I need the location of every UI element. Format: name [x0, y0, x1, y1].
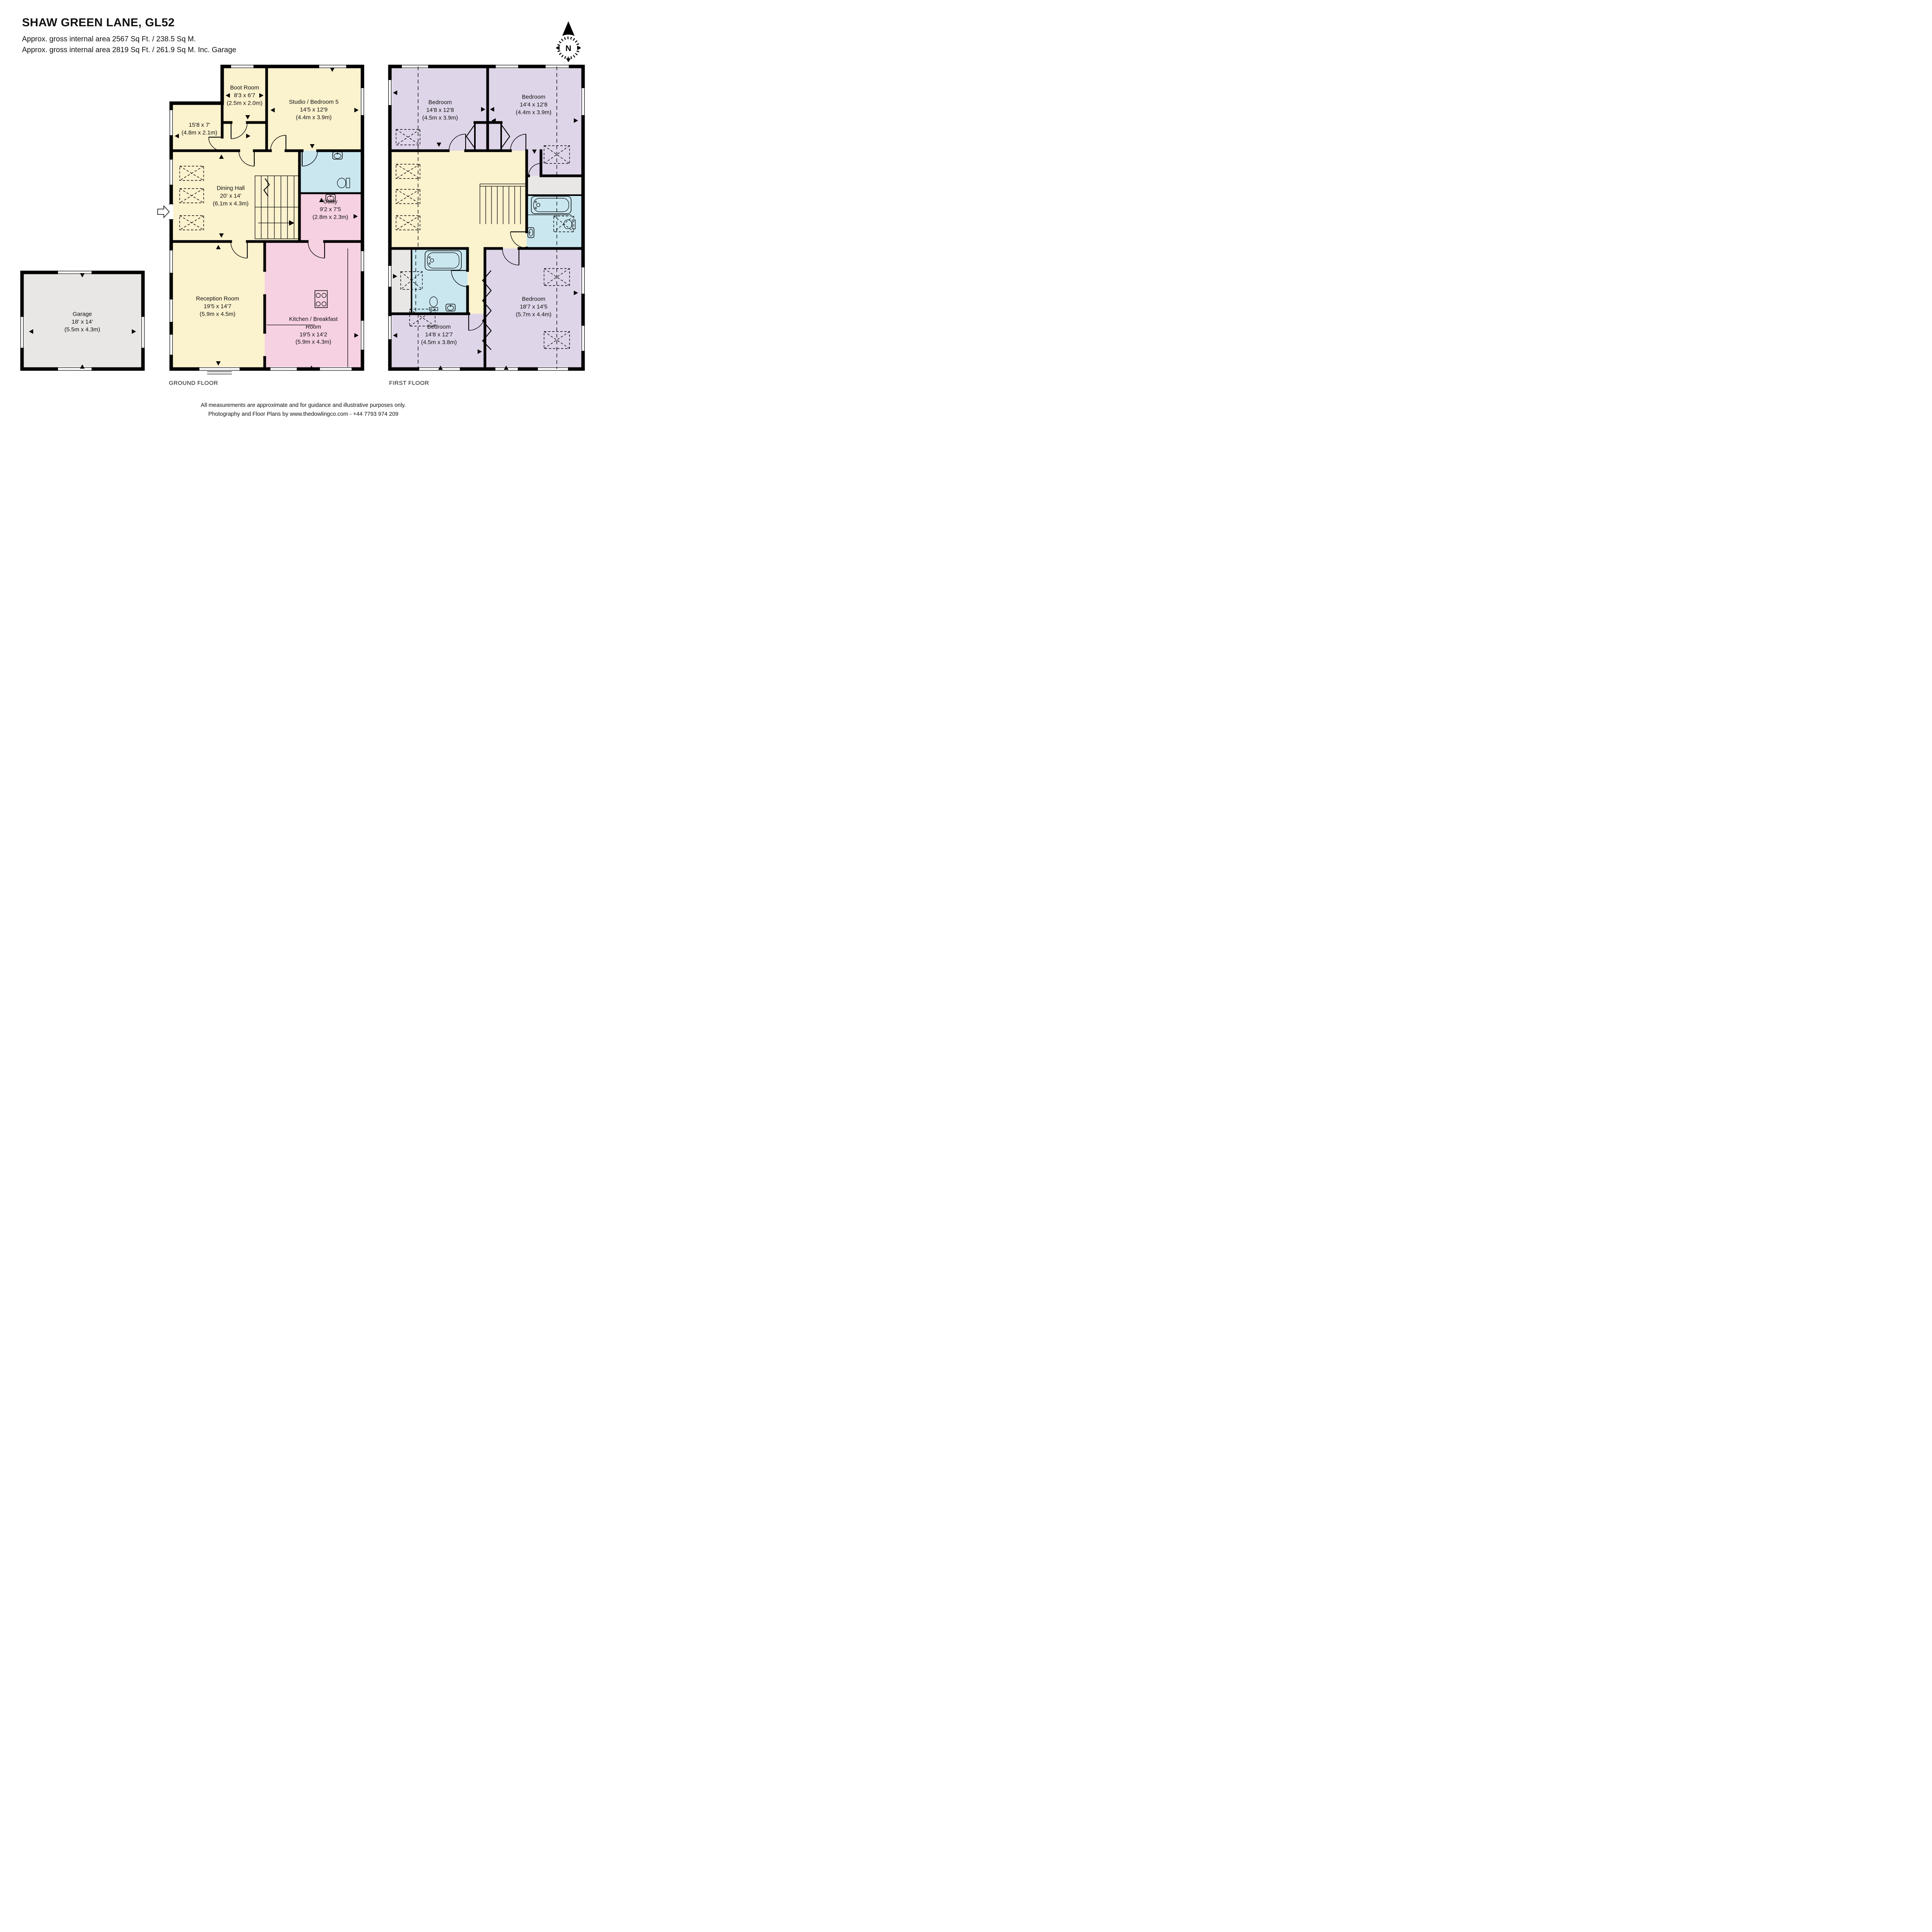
disclaimer: All measurements are approximate and for… — [0, 401, 607, 419]
disclaimer-line2: Photography and Floor Plans by www.thedo… — [0, 410, 607, 419]
first-floor-plan — [389, 65, 585, 371]
compass-n-label: N — [565, 44, 571, 53]
entrance — [158, 204, 173, 219]
room-label-garage: Garage 18' x 14' (5.5m x 4.3m) — [65, 310, 100, 333]
compass-icon: N — [556, 21, 581, 62]
room-label-bedroom-top-right: Bedroom 14'4 x 12'8 (4.4m x 3.9m) — [516, 93, 552, 116]
door-step — [207, 372, 232, 374]
floorplan-page: N SHAW GREEN LANE, GL52 Approx. gross in… — [0, 0, 607, 429]
entrance-arrow-icon — [158, 206, 169, 218]
room-label-bedroom-bottom-left: Bedroom 14'8 x 12'7 (4.5m x 3.8m) — [421, 323, 457, 346]
page-title: SHAW GREEN LANE, GL52 — [22, 16, 236, 29]
room-label-bedroom-bottom-right: Bedroom 18'7 x 14'5 (5.7m x 4.4m) — [516, 295, 552, 318]
room-label-reception: Reception Room 19'5 x 14'7 (5.9m x 4.5m) — [196, 295, 239, 318]
disclaimer-line1: All measurements are approximate and for… — [0, 401, 607, 410]
room-label-dining-hall: Dining Hall 20' x 14' (6.1m x 4.3m) — [213, 184, 249, 207]
gross-area-inc-garage: Approx. gross internal area 2819 Sq Ft. … — [22, 45, 236, 56]
room-label-kitchen: Kitchen / Breakfast Room 19'5 x 14'2 (5.… — [288, 315, 339, 346]
floorplan-drawing: N — [0, 0, 607, 429]
room-label-utility: Utility 9'2 x 7'5 (2.8m x 2.3m) — [313, 198, 349, 221]
room-label-boot-room: Boot Room 8'3 x 6'7 (2.5m x 2.0m) — [227, 84, 263, 107]
room-label-bedroom-top-left: Bedroom 14'8 x 12'8 (4.5m x 3.9m) — [422, 99, 458, 121]
room-label-hallway: 15'8 x 7' (4.8m x 2.1m) — [182, 121, 218, 137]
gross-area: Approx. gross internal area 2567 Sq Ft. … — [22, 34, 236, 45]
room-label-studio-bedroom5: Studio / Bedroom 5 14'5 x 12'9 (4.4m x 3… — [289, 98, 338, 121]
title-block: SHAW GREEN LANE, GL52 Approx. gross inte… — [22, 16, 236, 56]
first-floor-caption: FIRST FLOOR — [389, 380, 429, 386]
ground-floor-caption: GROUND FLOOR — [169, 380, 218, 386]
